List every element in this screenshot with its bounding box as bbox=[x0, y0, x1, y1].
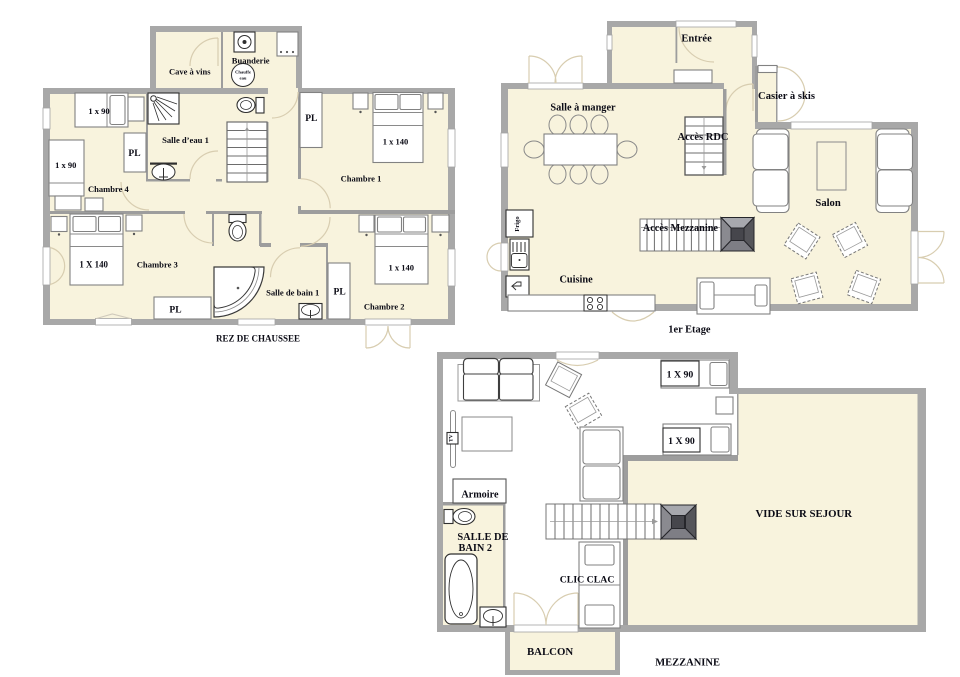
svg-text:Cave à vins: Cave à vins bbox=[169, 67, 211, 77]
svg-text:CLIC CLAC: CLIC CLAC bbox=[560, 575, 615, 586]
svg-text:BAIN 2: BAIN 2 bbox=[459, 543, 492, 554]
svg-text:Entrée: Entrée bbox=[681, 34, 712, 45]
svg-text:VIDE SUR SEJOUR: VIDE SUR SEJOUR bbox=[756, 508, 853, 520]
svg-text:Salle d’eau 1: Salle d’eau 1 bbox=[162, 135, 209, 145]
svg-text:Chambre 1: Chambre 1 bbox=[341, 174, 382, 184]
svg-text:Salon: Salon bbox=[815, 198, 840, 209]
svg-text:Salle à manger: Salle à manger bbox=[550, 103, 616, 114]
svg-text:1 x 140: 1 x 140 bbox=[383, 137, 409, 147]
svg-text:PL: PL bbox=[169, 305, 181, 315]
svg-text:Accès RDC: Accès RDC bbox=[677, 132, 728, 143]
svg-text:Salle de bain 1: Salle de bain 1 bbox=[266, 287, 319, 297]
svg-text:1er Etage: 1er Etage bbox=[668, 324, 711, 335]
svg-text:eau: eau bbox=[240, 76, 247, 81]
svg-text:Accès Mezzanine: Accès Mezzanine bbox=[643, 223, 719, 234]
svg-text:Buanderie: Buanderie bbox=[232, 56, 270, 66]
svg-text:Frigo: Frigo bbox=[514, 216, 521, 231]
svg-text:REZ DE CHAUSSEE: REZ DE CHAUSSEE bbox=[216, 333, 300, 343]
svg-text:PL: PL bbox=[305, 114, 317, 124]
svg-text:Casier à skis: Casier à skis bbox=[758, 91, 815, 102]
svg-text:TV: TV bbox=[449, 434, 455, 442]
svg-text:Chambre 3: Chambre 3 bbox=[137, 259, 178, 269]
svg-text:BALCON: BALCON bbox=[527, 646, 573, 658]
svg-text:1 x 90: 1 x 90 bbox=[55, 160, 76, 170]
svg-text:PL: PL bbox=[128, 149, 140, 159]
svg-text:PL: PL bbox=[334, 287, 346, 297]
svg-text:1 X 140: 1 X 140 bbox=[79, 259, 108, 269]
svg-text:SALLE DE: SALLE DE bbox=[457, 532, 508, 543]
svg-text:1 x 140: 1 x 140 bbox=[388, 262, 414, 272]
svg-text:Cuisine: Cuisine bbox=[559, 275, 593, 286]
svg-text:Chauffe: Chauffe bbox=[235, 70, 251, 75]
svg-text:1 X 90: 1 X 90 bbox=[667, 370, 694, 381]
svg-text:Chambre 4: Chambre 4 bbox=[88, 184, 129, 194]
svg-text:1 x 90: 1 x 90 bbox=[88, 106, 109, 116]
svg-text:MEZZANINE: MEZZANINE bbox=[655, 658, 720, 669]
svg-text:Armoire: Armoire bbox=[461, 490, 499, 501]
svg-text:Chambre 2: Chambre 2 bbox=[364, 301, 405, 311]
svg-text:1 X 90: 1 X 90 bbox=[668, 436, 695, 447]
